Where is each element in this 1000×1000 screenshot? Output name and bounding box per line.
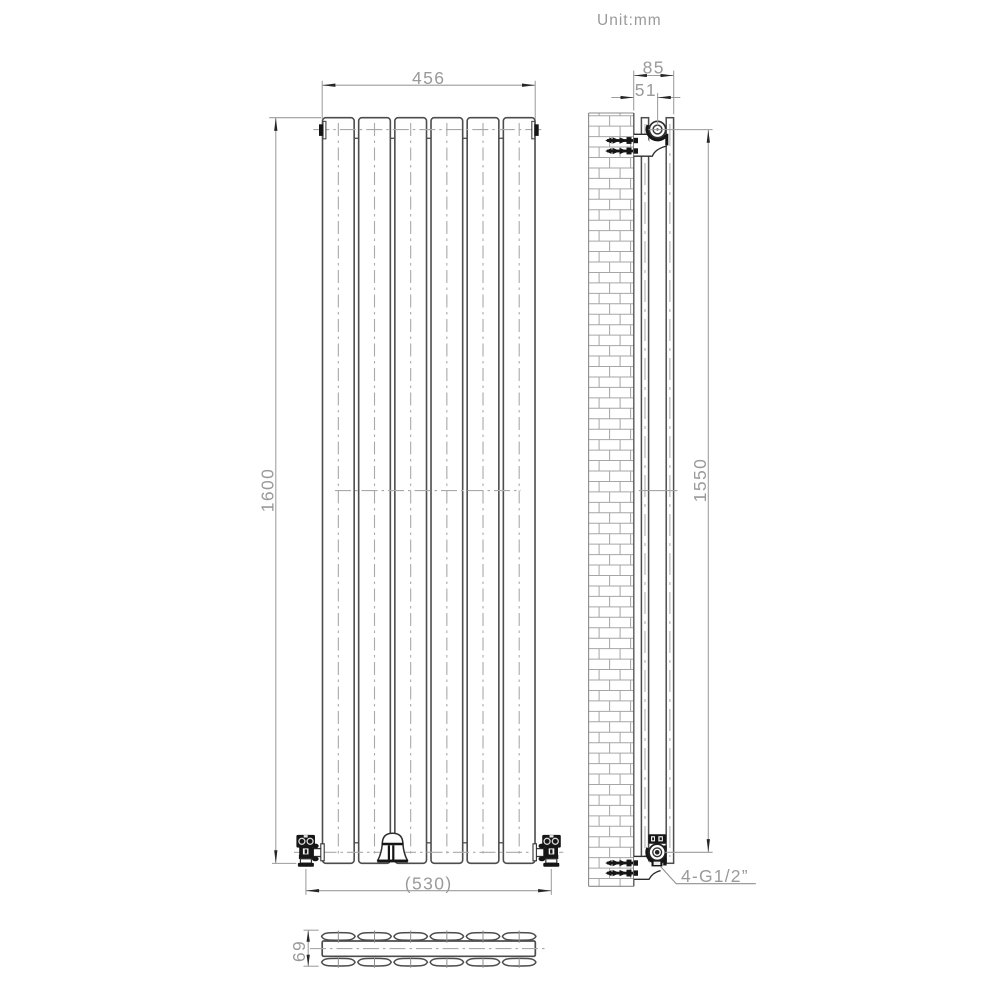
svg-text:51: 51 (635, 80, 657, 100)
svg-text:(530): (530) (405, 874, 453, 894)
svg-text:1600: 1600 (258, 468, 278, 513)
svg-text:4-G1/2”: 4-G1/2” (681, 866, 749, 886)
svg-text:69: 69 (289, 940, 309, 962)
svg-text:85: 85 (643, 58, 665, 78)
svg-text:1550: 1550 (690, 458, 710, 503)
svg-text:456: 456 (412, 68, 445, 88)
svg-text:Unit:mm: Unit:mm (597, 12, 662, 29)
